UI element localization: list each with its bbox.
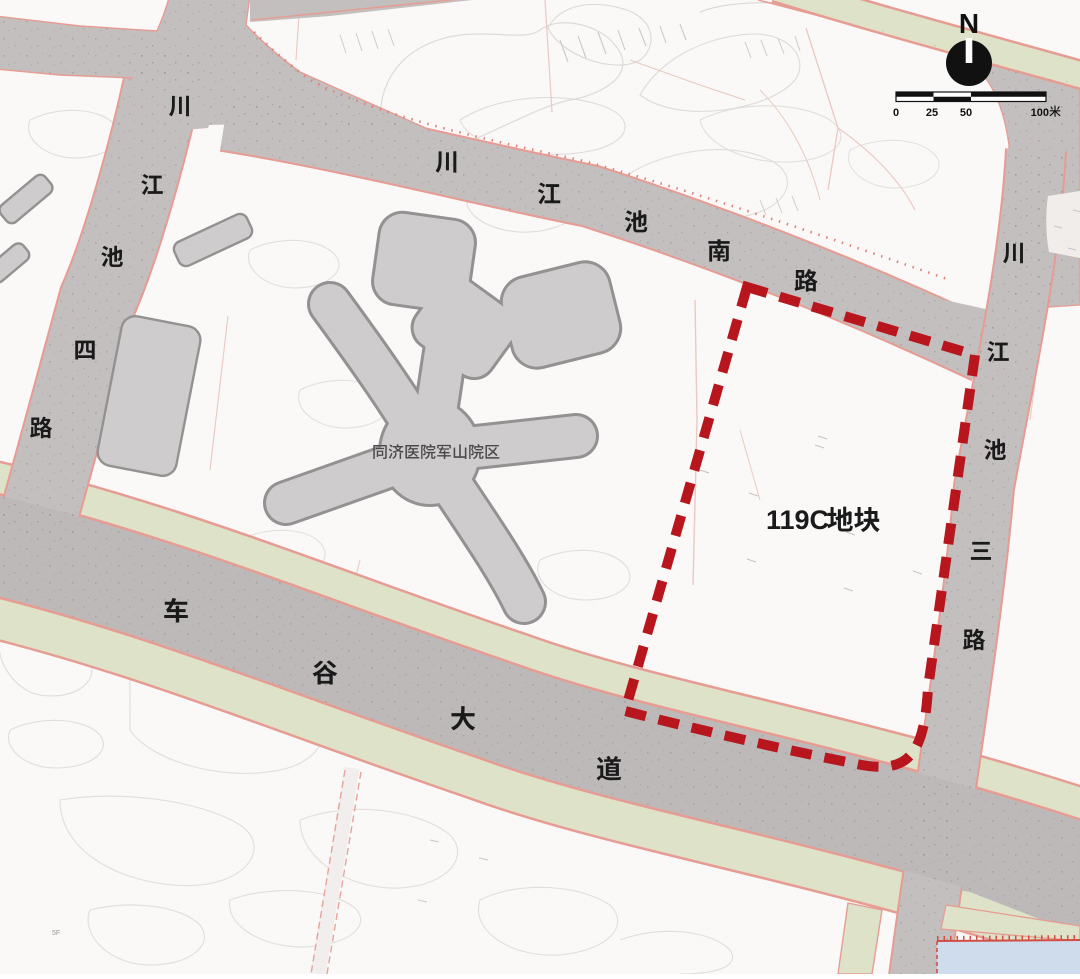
svg-text:100: 100 — [1031, 107, 1049, 119]
svg-text:N: N — [959, 8, 979, 39]
svg-text:0: 0 — [893, 107, 899, 119]
svg-text:5F: 5F — [52, 930, 60, 937]
svg-text:119C: 119C — [766, 505, 829, 535]
svg-text:25: 25 — [926, 107, 938, 119]
svg-text:50: 50 — [960, 107, 972, 119]
